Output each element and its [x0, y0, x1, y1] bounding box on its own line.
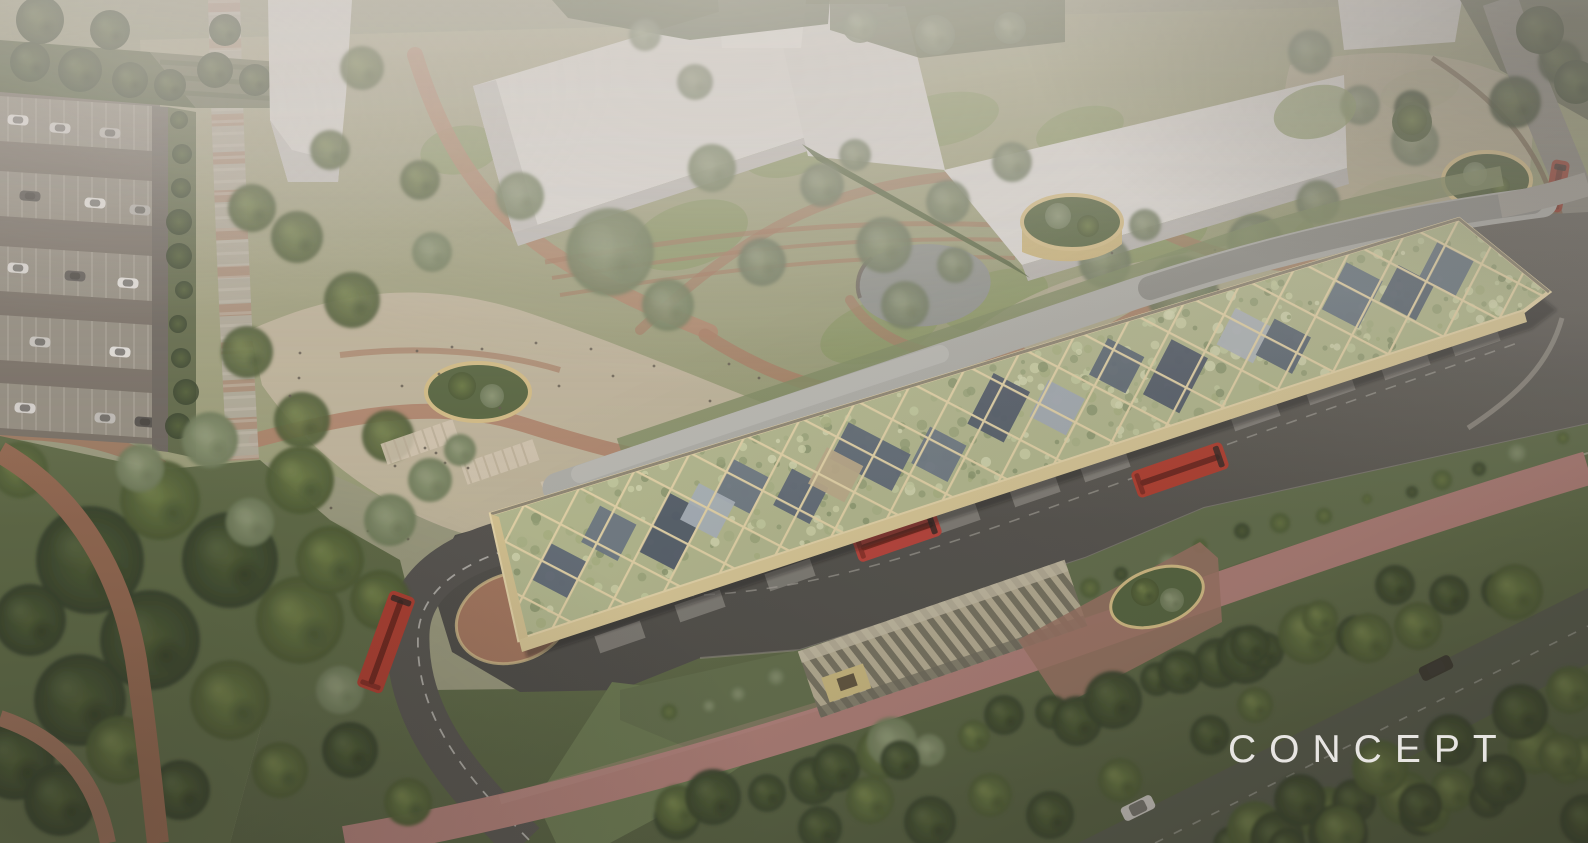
svg-text:CONCEPT: CONCEPT [1228, 728, 1510, 771]
